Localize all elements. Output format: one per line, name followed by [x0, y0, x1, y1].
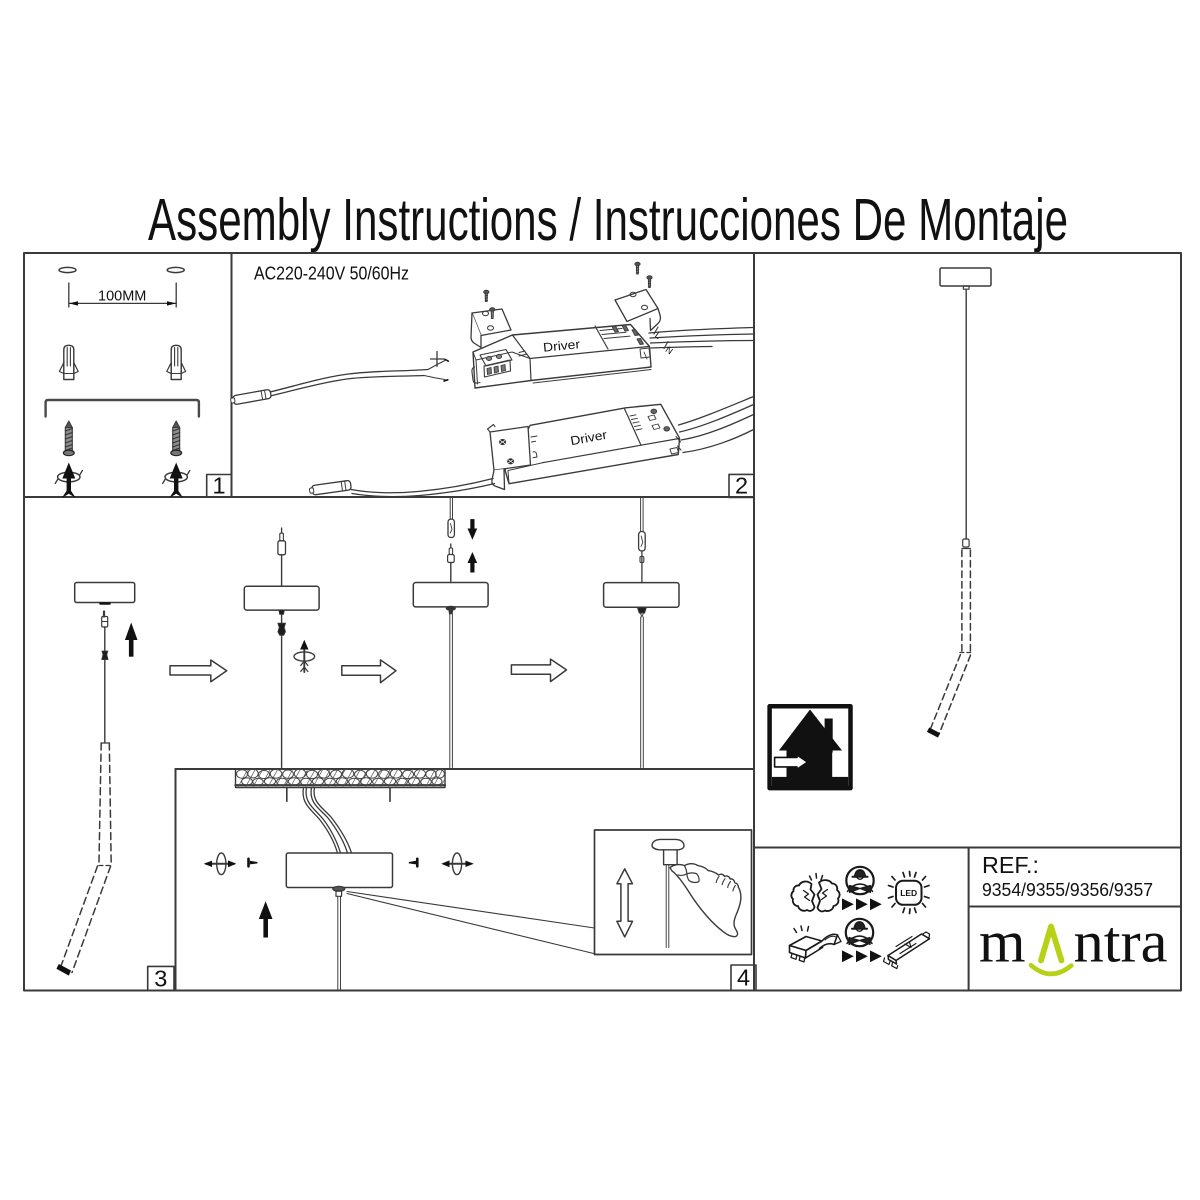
- svg-text:3: 3: [154, 966, 167, 992]
- svg-text:100MM: 100MM: [98, 289, 146, 305]
- svg-text:Assembly Instructions / Instru: Assembly Instructions / Instrucciones De…: [148, 187, 1068, 253]
- svg-text:4: 4: [737, 965, 750, 991]
- svg-text:REF.:: REF.:: [982, 852, 1039, 878]
- svg-text:AC220-240V 50/60Hz: AC220-240V 50/60Hz: [254, 263, 409, 284]
- svg-text:ntra: ntra: [1074, 909, 1168, 975]
- svg-text:1: 1: [212, 473, 225, 499]
- svg-text:2: 2: [735, 473, 748, 499]
- svg-text:L: L: [653, 330, 663, 341]
- svg-text:9354/9355/9356/9357: 9354/9355/9356/9357: [982, 879, 1153, 900]
- svg-text:m: m: [979, 909, 1026, 975]
- svg-text:LED: LED: [900, 888, 917, 898]
